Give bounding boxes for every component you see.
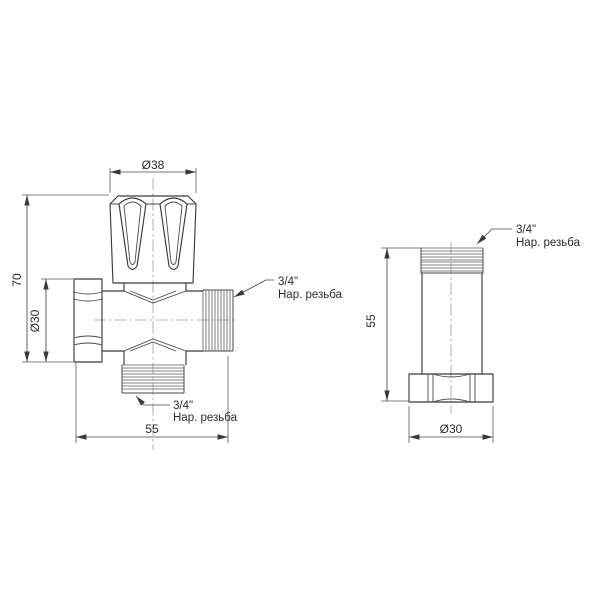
front-side-thread-callout: 3/4" Нар. резьба [234, 276, 343, 301]
dim-overall-height: 70 [10, 273, 24, 287]
bottom-thread-type-label: Нар. резьба [173, 412, 238, 424]
front-bottom-thread-callout: 3/4" Нар. резьба [136, 396, 238, 424]
front-dimensions: Ø38 70 Ø30 55 [10, 158, 228, 443]
dim-handle-diameter: Ø38 [142, 158, 165, 172]
side-view: 55 Ø30 3/4" Нар. резьба [364, 224, 581, 443]
front-view: Ø38 70 Ø30 55 3/4" Нар. резьба [10, 158, 343, 450]
front-side-outlet-thread [203, 290, 233, 351]
side-view-thread-size-label: 3/4" [516, 224, 536, 236]
side-top-thread [421, 248, 483, 273]
side-thread-callout: 3/4" Нар. резьба [477, 224, 581, 249]
side-body [422, 273, 482, 374]
technical-drawing-svg: Ø38 70 Ø30 55 3/4" Нар. резьба [0, 0, 600, 600]
side-thread-size-label: 3/4" [278, 276, 298, 288]
side-dimensions: 55 Ø30 [364, 248, 493, 443]
valve-body [102, 283, 203, 365]
bottom-thread-size-label: 3/4" [173, 400, 193, 412]
dim-nut-diameter-side: Ø30 [440, 422, 463, 436]
front-centerlines [94, 178, 237, 450]
dim-nut-diameter-front: Ø30 [28, 309, 42, 332]
front-hex-nut [74, 279, 102, 362]
dim-side-height: 55 [364, 314, 378, 328]
valve-technical-drawing: Ø38 70 Ø30 55 3/4" Нар. резьба [0, 0, 600, 600]
side-thread-type-label: Нар. резьба [278, 289, 343, 301]
side-view-thread-type-label: Нар. резьба [516, 237, 581, 249]
dim-overall-width: 55 [145, 422, 159, 436]
